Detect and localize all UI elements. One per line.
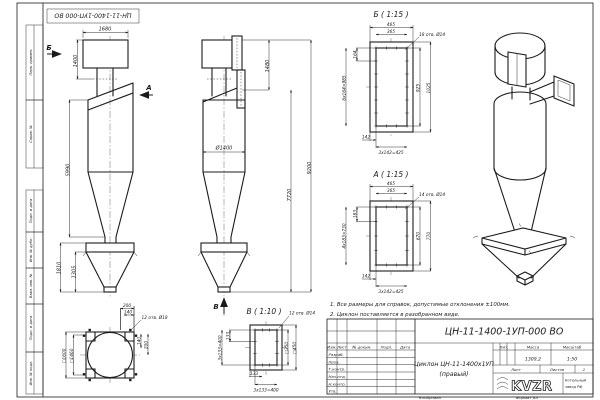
dim-b-pitch1: 164	[353, 50, 359, 58]
dim-base-200: 200	[123, 303, 131, 309]
dim-side-diameter: Ø1400	[215, 145, 233, 152]
dim-base-140: 140	[124, 310, 132, 316]
company-line1: Котельный	[565, 379, 587, 383]
tb-row-nachotd: Нач.отд.	[329, 374, 346, 379]
tb-sheet-label: Лист	[510, 367, 522, 372]
tb-doc-number: ЦН-11-1400-1УП-000 ВО	[445, 327, 564, 338]
tb-header-doc: № докум.	[351, 345, 371, 350]
view-b-title: Б ( 1:15 )	[374, 10, 409, 19]
tb-row-nkontr: Н.контр.	[329, 381, 346, 386]
title-block: Изм. Лист № докум. Подп. Дата Разраб. Пр…	[327, 319, 593, 395]
dim-a-pitch: 4х183=730	[342, 223, 348, 249]
dim-v-sq-out: □450	[292, 342, 298, 355]
notes: 1. Все размеры для справок, допустимые о…	[330, 302, 510, 318]
dim-front-top-height: 1400	[73, 55, 79, 68]
tb-header-list: Лист	[336, 345, 348, 350]
dim-b-pitch: 6х164=985	[342, 75, 348, 101]
dim-b-outer-w: 465	[387, 22, 395, 28]
tb-scale-value: 1:50	[567, 357, 577, 363]
holes-v-label: 12 отв. Ø14	[289, 310, 315, 317]
holes-a-label: 14 отв. Ø14	[419, 191, 445, 198]
tb-mass-label: Масса	[527, 345, 540, 350]
dim-a-outer-w: 465	[387, 181, 395, 187]
margin-label: Взам. инв. №	[29, 274, 33, 299]
view-b: Б ( 1:15 ) 465 365 18 отв. Ø14 164 6х164…	[342, 10, 446, 156]
dim-b-inner-w: 365	[387, 29, 395, 35]
dim-v-off: 133	[250, 371, 258, 377]
side-view: Ø1400 1480 7720 9200 В	[198, 36, 313, 316]
dim-side-top: 1480	[265, 60, 271, 73]
logo-text: KVZR	[511, 380, 553, 395]
isometric-view	[473, 33, 575, 285]
dim-side-total: 9200	[307, 162, 313, 175]
top-stamp-text: ЦН-11-1400-1УП-000 ВО	[54, 12, 131, 19]
dim-v-sq-in: □350	[284, 342, 290, 355]
dim-v-pitch: 3х133=400	[218, 335, 224, 361]
tb-scale-label: Масштаб	[563, 345, 582, 350]
dim-a-pitch1: 183	[353, 210, 359, 218]
view-a-title: А ( 1:15 )	[373, 170, 409, 179]
margin-label: Подп. и дата	[29, 316, 33, 340]
section-arrow-a-label: А	[145, 84, 151, 92]
tb-lit-label: Лит.	[499, 345, 509, 350]
company-line2: завод РФ	[565, 385, 582, 389]
tb-row-utv: Утв.	[329, 389, 337, 394]
margin-label: Подп. и дата	[29, 199, 33, 223]
margin-label: Справ. №	[29, 125, 33, 143]
dim-a-inner-w: 365	[387, 188, 395, 194]
dim-a-outer-h: 770	[426, 232, 432, 240]
base-plan-view: 200 140 12 отв. Ø18 140 200 □1600 □1460	[62, 303, 168, 383]
format-label: Формат А3	[516, 395, 539, 400]
tb-row-razrab: Разраб.	[329, 352, 344, 357]
company-logo: KVZR	[497, 378, 553, 395]
tb-sheets-label: Листов	[549, 367, 565, 372]
tb-header-izm: Изм.	[327, 345, 336, 350]
tb-name-line2: (правый)	[439, 371, 468, 378]
dim-front-bunker: 1810	[57, 262, 63, 275]
drawing-sheet: Перв. примен. Справ. № Подп. и дата Инв.…	[0, 0, 600, 400]
dim-front-body: 5990	[66, 164, 72, 177]
tb-row-tkontr: Т.контр.	[329, 367, 346, 372]
dim-b-off: 142	[362, 135, 370, 141]
section-arrow-b-label: Б	[46, 44, 51, 52]
margin-label: Перв. примен.	[29, 49, 33, 76]
margin-label: Инв. № дубл.	[29, 238, 33, 263]
front-view: 1680 1400 5990 1810 1305 Б А	[46, 27, 153, 299]
view-v: В ( 1:10 ) 12 отв. Ø14 133 3х133=400 □35…	[218, 307, 316, 394]
holes-b-label: 18 отв. Ø14	[419, 31, 445, 38]
view-v-title: В ( 1:10 )	[247, 307, 282, 316]
dim-base-sq-out: □1600	[62, 348, 68, 363]
dim-b-inner-h: 925	[416, 84, 422, 92]
tb-sheets-value: 1	[583, 367, 585, 372]
note-2: 2. Циклон поставляется в разобранном вид…	[330, 312, 460, 318]
coil-icon	[497, 378, 508, 390]
note-1: 1. Все размеры для справок, допустимые о…	[330, 302, 510, 308]
dim-a-off: 142	[362, 274, 370, 280]
dim-base-r200: 200	[144, 341, 150, 349]
dim-v-pitch1: 133	[226, 332, 232, 340]
dim-a-inner-h: 670	[416, 232, 422, 240]
view-a: А ( 1:15 ) 465 365 14 отв. Ø14 183 4х183…	[342, 170, 446, 295]
tb-name-line1: Циклон ЦН-11-1400х1УП	[414, 361, 494, 368]
dim-base-r140: 140	[137, 337, 143, 345]
margin-label: Инв. № подл.	[29, 361, 33, 386]
section-arrow-v-label: В	[213, 303, 218, 311]
dim-v-pitch-bottom: 3х133=400	[253, 388, 279, 394]
tb-row-prov: Пров.	[329, 359, 340, 364]
top-stamp: ЦН-11-1400-1УП-000 ВО	[47, 9, 139, 23]
tb-header-podp: Подп.	[381, 345, 393, 350]
kopiroval-label: Копировал	[419, 395, 442, 400]
dim-a-pitch-bottom: 3х142=425	[378, 289, 404, 295]
dim-front-cone: 1305	[72, 266, 78, 279]
tb-header-data: Дата	[399, 345, 411, 350]
dim-b-outer-h: 1025	[426, 82, 432, 93]
dim-front-width: 1680	[99, 27, 112, 33]
tb-mass-value: 1309,2	[525, 357, 541, 363]
dim-b-pitch-bottom: 3х142=425	[378, 150, 404, 156]
holes-base-label: 12 отв. Ø18	[142, 314, 168, 321]
drawing-canvas: Перв. примен. Справ. № Подп. и дата Инв.…	[0, 0, 600, 400]
dim-side-mid: 7720	[287, 189, 293, 202]
dim-base-sq-in: □1460	[69, 348, 75, 363]
margin-stamps: Перв. примен. Справ. № Подп. и дата Инв.…	[26, 25, 43, 394]
